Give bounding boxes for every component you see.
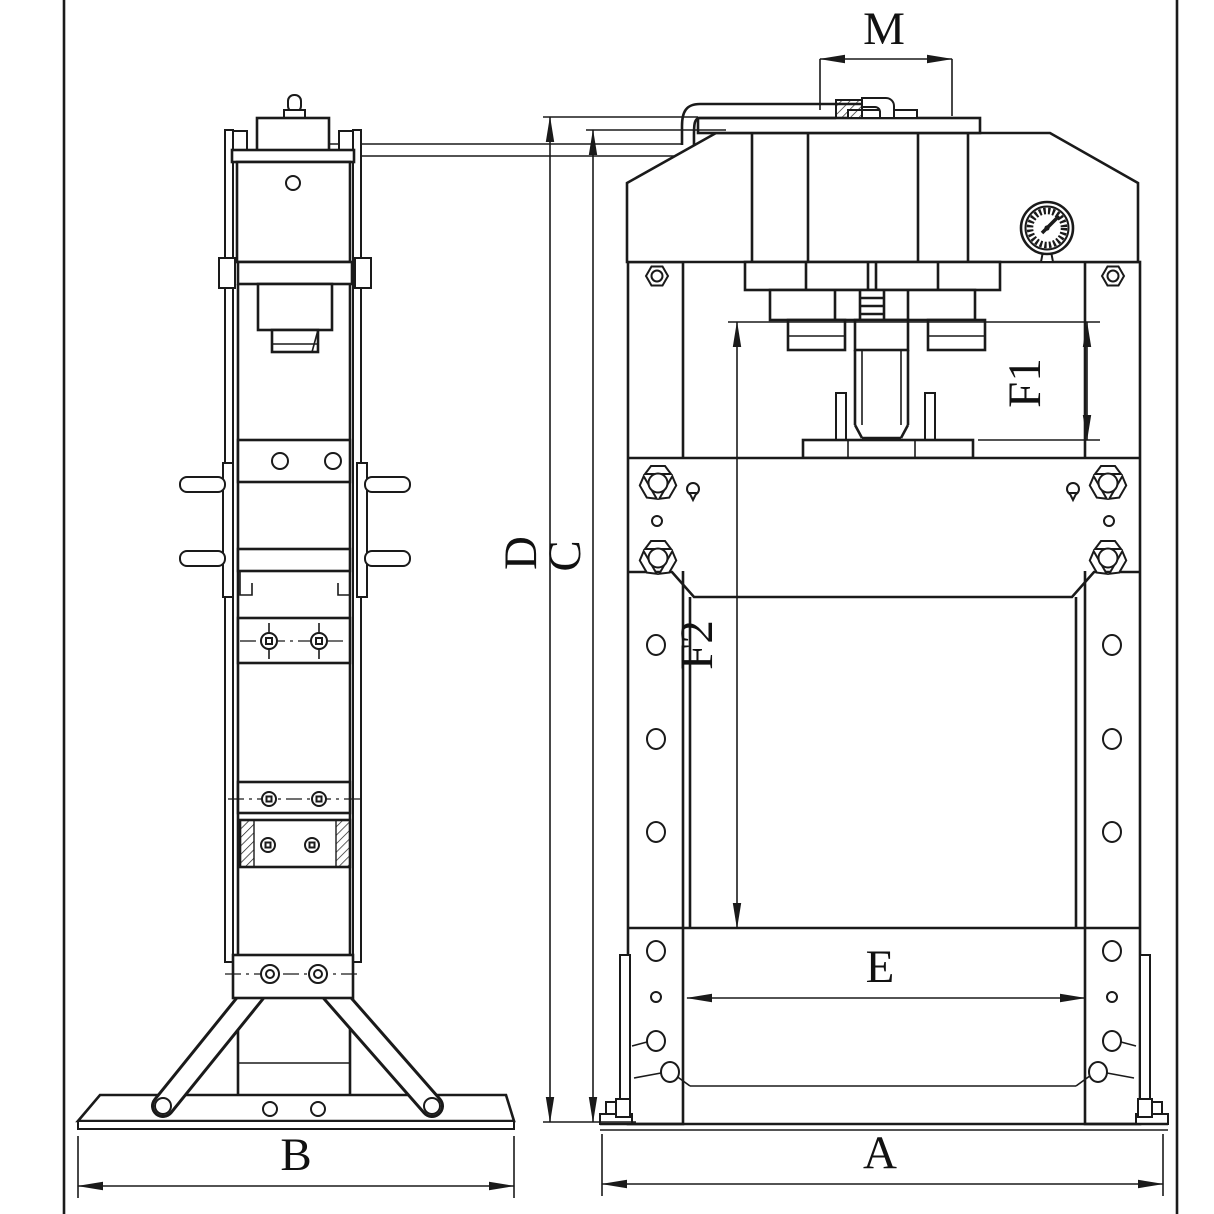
pump-knob xyxy=(284,95,305,120)
dim-label-C: C xyxy=(539,540,591,571)
dim-label-E: E xyxy=(866,941,895,993)
dim-label-B: B xyxy=(280,1129,311,1181)
ram-assembly xyxy=(745,262,1000,350)
dim-label-F2: F2 xyxy=(671,620,723,670)
dimension-E: E xyxy=(687,941,1085,998)
head-bolt-right xyxy=(1102,267,1124,286)
guide-block xyxy=(238,440,350,482)
column-joint-lower xyxy=(228,782,362,813)
ram-housing xyxy=(258,284,332,352)
work-plate xyxy=(803,440,973,458)
clamp-block xyxy=(240,820,350,867)
piston xyxy=(836,350,935,440)
drawing-page: M D C F1 F2 E B A xyxy=(0,0,1214,1214)
work-table xyxy=(628,458,1140,928)
press-technical-drawing: M D C F1 F2 E B A xyxy=(0,0,1214,1214)
cylinder-body xyxy=(237,162,350,262)
side-view xyxy=(78,95,694,1129)
column-joint-upper xyxy=(238,618,350,663)
foot-bracket-left xyxy=(600,955,632,1124)
dimension-A: A xyxy=(602,1127,1163,1196)
head-bolt-left xyxy=(646,267,668,286)
leg-mount-block xyxy=(225,955,362,998)
dim-label-A: A xyxy=(863,1127,897,1179)
head-plate xyxy=(232,150,354,162)
dimension-F1: F1 xyxy=(728,322,1100,440)
pump-body xyxy=(257,118,329,152)
foot-bracket-right xyxy=(1136,955,1168,1124)
hydraulic-hose-run xyxy=(330,144,694,156)
frame-columns xyxy=(628,262,1140,1124)
dim-label-M: M xyxy=(863,3,905,55)
dimension-B: B xyxy=(78,1129,514,1198)
base-plate xyxy=(78,1095,514,1129)
dim-label-F1: F1 xyxy=(999,358,1051,408)
